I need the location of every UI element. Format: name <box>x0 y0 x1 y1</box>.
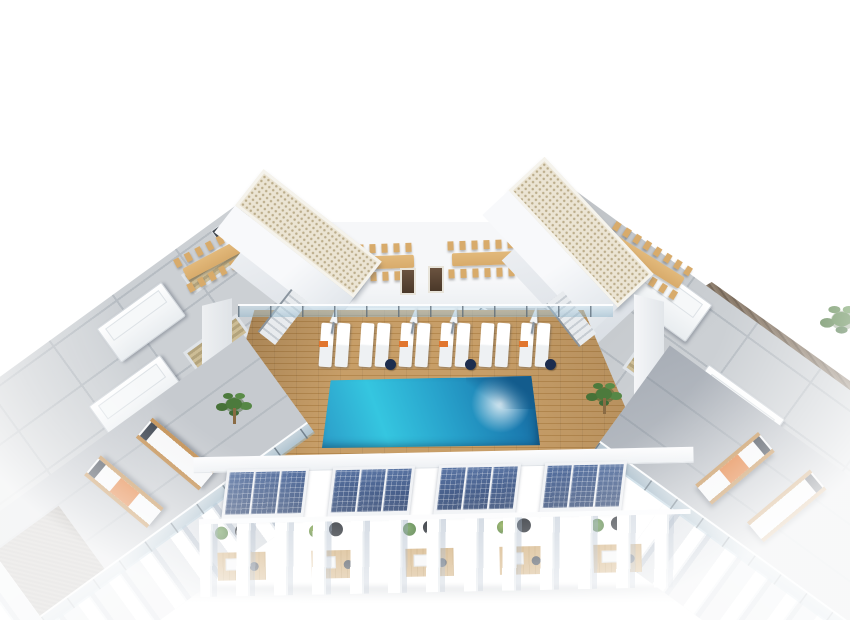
pergola-zone <box>199 509 693 597</box>
lounger-pillow <box>753 436 771 455</box>
orange-towel <box>319 341 328 347</box>
sun-lounger <box>478 323 494 368</box>
orange-towel <box>439 341 448 347</box>
navy-side-table <box>385 359 396 370</box>
rooftop-rendering: Rooftop solarium terrace of a white resi… <box>0 0 850 620</box>
palm-trunk <box>233 408 236 424</box>
solar-module <box>543 465 572 508</box>
front-facade <box>193 447 696 612</box>
solar-module <box>569 465 598 508</box>
deck-lounger-row <box>318 314 560 374</box>
lounger-group <box>478 314 513 374</box>
navy-side-table <box>545 359 556 370</box>
solar-module <box>383 469 412 512</box>
lounger-pillow <box>88 460 106 479</box>
solar-module <box>463 467 492 510</box>
lounger-group <box>438 314 473 374</box>
service-door <box>428 266 444 293</box>
orange-towel <box>399 341 408 347</box>
solar-array <box>539 461 627 513</box>
lounger-group <box>318 314 353 374</box>
solar-module <box>595 464 624 507</box>
solar-array <box>221 468 309 520</box>
solar-module <box>489 466 518 509</box>
sun-lounger <box>334 323 350 368</box>
sun-lounger <box>358 323 374 368</box>
solar-module <box>225 472 254 515</box>
palm-trunk <box>603 398 606 414</box>
daybed-sofa <box>96 282 185 363</box>
solar-module <box>331 470 360 513</box>
solar-array <box>327 466 415 518</box>
wood-sun-lounger <box>695 432 775 505</box>
deck-glass-balustrade <box>238 304 613 317</box>
service-door <box>400 268 416 295</box>
orange-towel <box>519 341 528 347</box>
solar-module <box>277 471 306 514</box>
swimming-pool <box>322 376 540 448</box>
solar-array <box>433 463 521 515</box>
lounger-group <box>518 314 553 374</box>
pergola-fins-front <box>199 509 693 597</box>
lounger-group <box>358 314 393 374</box>
lounger-pillow <box>805 474 823 493</box>
navy-side-table <box>465 359 476 370</box>
solar-module <box>251 471 280 514</box>
lounger-group <box>398 314 433 374</box>
lounger-pillow <box>140 422 158 441</box>
solar-module <box>437 468 466 511</box>
sun-lounger <box>414 323 430 368</box>
wood-sun-lounger <box>747 470 827 543</box>
solar-module <box>357 469 386 512</box>
wood-sun-lounger <box>84 455 164 528</box>
palm-fronds <box>832 312 850 326</box>
sun-lounger <box>494 323 510 368</box>
